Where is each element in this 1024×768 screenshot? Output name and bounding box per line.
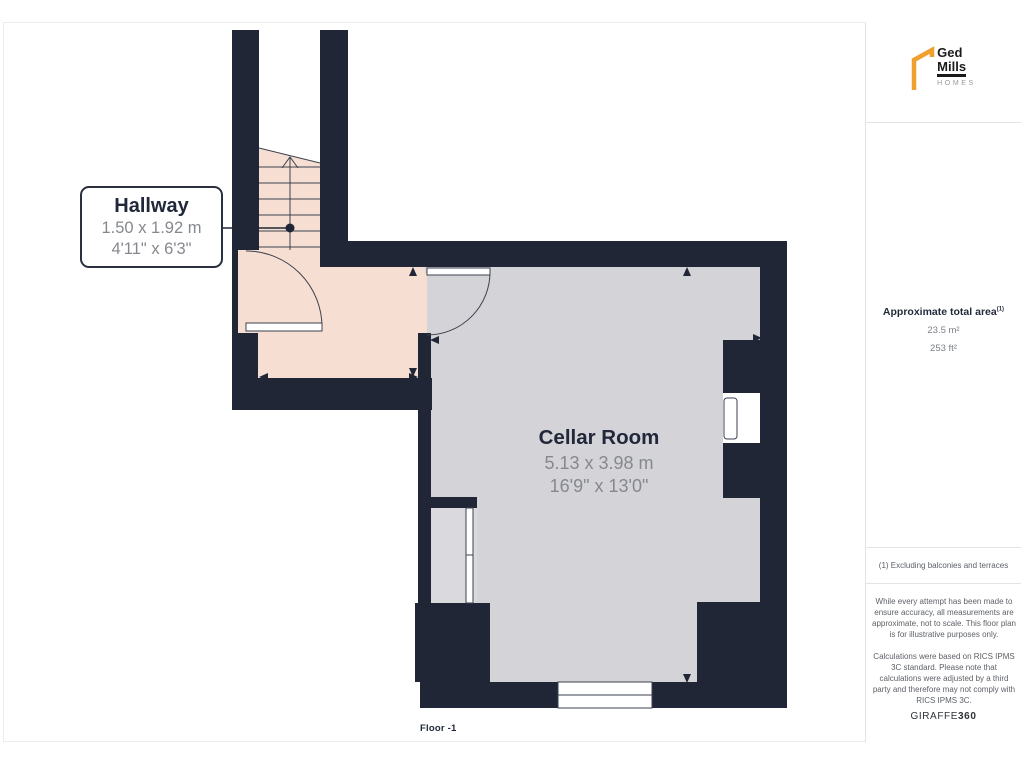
room-dim-metric: 1.50 x 1.92 m — [102, 218, 202, 239]
brand-logo: Ged Mills HOMES — [866, 46, 1021, 92]
floor-label: Floor -1 — [420, 723, 456, 734]
disclaimer-accuracy: While every attempt has been made to ens… — [870, 596, 1018, 640]
hallway-label-box: Hallway 1.50 x 1.92 m 4'11" x 6'3" — [80, 186, 223, 268]
door-leaf — [246, 323, 322, 331]
sidebar: Ged Mills HOMES Approximate total area(1… — [865, 22, 1021, 742]
room-name: Cellar Room — [518, 425, 680, 452]
divider — [866, 547, 1021, 548]
window-right-niche — [723, 393, 760, 443]
room-name: Hallway — [114, 194, 188, 218]
brand-suffix: 360 — [958, 711, 977, 722]
logo-line1: Ged — [937, 46, 962, 60]
logo-line3: HOMES — [937, 80, 976, 87]
logo-roof-icon — [911, 46, 935, 92]
door-leaf — [427, 268, 490, 275]
cellar-room-label: Cellar Room 5.13 x 3.98 m 16'9" x 13'0" — [518, 425, 680, 498]
divider — [866, 122, 1021, 123]
room-dim-metric: 5.13 x 3.98 m — [518, 452, 680, 475]
area-imperial: 253 ft² — [866, 343, 1021, 354]
approximate-area-block: Approximate total area(1) 23.5 m² 253 ft… — [866, 306, 1021, 354]
room-dim-imperial: 4'11" x 6'3" — [111, 239, 191, 260]
footnote: (1) Excluding balconies and terraces — [866, 561, 1021, 570]
giraffe360-brand: GIRAFFE360 — [866, 711, 1021, 722]
window-bottom — [558, 682, 652, 708]
leader-dot — [286, 224, 295, 233]
logo-line2: Mills — [937, 60, 966, 78]
floorplan-page: Hallway 1.50 x 1.92 m 4'11" x 6'3" Cella… — [0, 0, 1024, 768]
window-left — [466, 508, 473, 603]
footnote-superscript: (1) — [997, 307, 1004, 313]
disclaimer-calculations: Calculations were based on RICS IPMS 3C … — [870, 651, 1018, 706]
approximate-area-title: Approximate total area(1) — [866, 306, 1021, 318]
brand-name: GIRAFFE — [910, 711, 958, 722]
divider — [866, 583, 1021, 584]
room-dim-imperial: 16'9" x 13'0" — [518, 475, 680, 498]
area-metric: 23.5 m² — [866, 325, 1021, 336]
